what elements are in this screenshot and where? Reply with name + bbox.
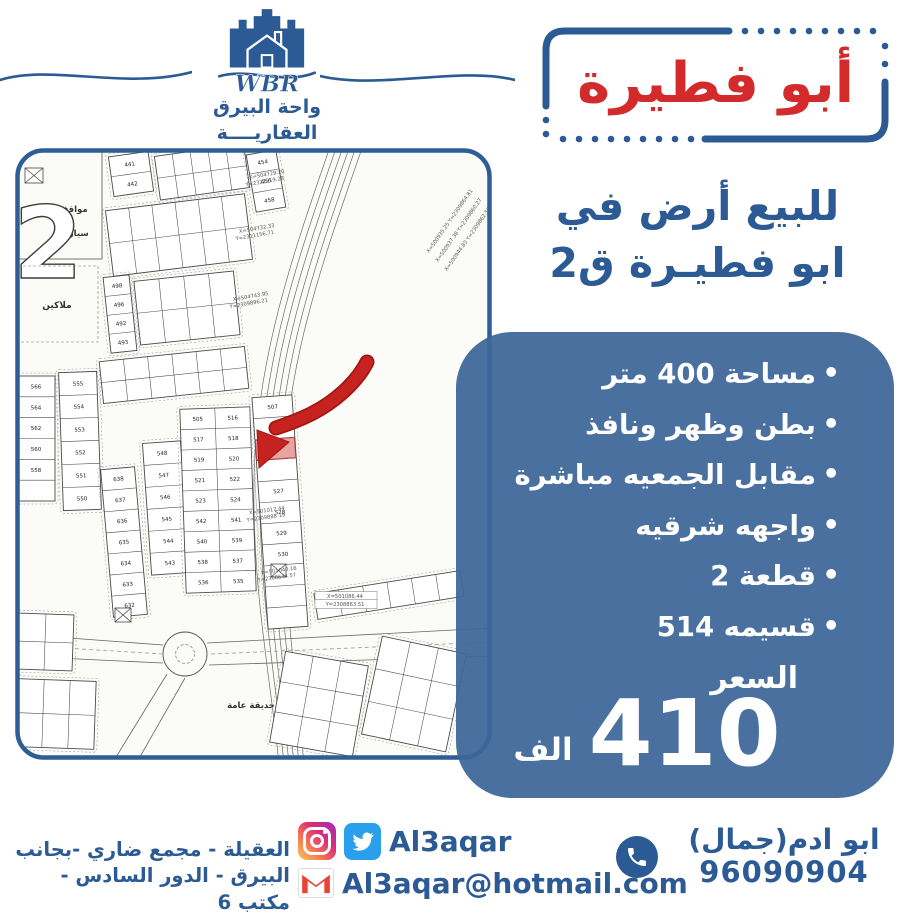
- page-title: أبو فطيرة: [533, 36, 898, 131]
- svg-text:547: 547: [158, 473, 169, 480]
- svg-text:558: 558: [31, 468, 42, 474]
- svg-text:518: 518: [228, 436, 239, 442]
- office-address: العقيلة - مجمع ضاري -بجانب البيرق - الدو…: [12, 837, 290, 916]
- svg-text:538: 538: [197, 560, 208, 566]
- phone-block: ابو ادم(جمال) 96090904: [616, 825, 898, 889]
- svg-text:564: 564: [31, 405, 42, 411]
- svg-text:2: 2: [15, 185, 83, 302]
- svg-text:530: 530: [278, 552, 289, 559]
- svg-text:540: 540: [197, 539, 208, 545]
- feature-item: قطعة 2: [484, 560, 842, 594]
- address-line2: البيرق - الدور السادس - مكتب 6: [12, 863, 290, 916]
- feature-item: مساحة 400 متر: [484, 358, 842, 392]
- price-row: 410 الف: [428, 690, 866, 777]
- svg-text:551: 551: [76, 473, 87, 479]
- contact-name: ابو ادم(جمال): [670, 825, 898, 856]
- svg-text:638: 638: [113, 476, 124, 483]
- right-wave-decoration: [320, 64, 515, 94]
- feature-list: مساحة 400 متربطن وظهر ونافذمقابل الجمعيه…: [456, 332, 894, 644]
- feature-item: بطن وظهر ونافذ: [484, 409, 842, 443]
- svg-text:539: 539: [232, 538, 243, 544]
- svg-text:636: 636: [117, 518, 128, 525]
- social-handle[interactable]: Al3aqar: [389, 825, 511, 858]
- sale-heading: للبيع أرض في ابو فطيـرة ق2: [505, 178, 890, 291]
- svg-text:541: 541: [231, 518, 242, 524]
- brand-logo: WBR واحة البيرق العقاريــــة: [192, 2, 342, 146]
- poster: WBR واحة البيرق العقاريــــة أبو فطيرة ل…: [0, 0, 900, 900]
- castle-icon: WBR: [213, 2, 321, 94]
- svg-text:552: 552: [75, 450, 86, 456]
- svg-text:542: 542: [196, 519, 207, 525]
- svg-text:548: 548: [157, 451, 168, 458]
- svg-text:529: 529: [276, 531, 287, 538]
- svg-text:حديقة عامة: حديقة عامة: [227, 701, 275, 711]
- price-unit: الف: [513, 732, 572, 768]
- social-row-email: Al3aqar@hotmail.com: [298, 863, 628, 903]
- svg-text:521: 521: [194, 478, 205, 484]
- phone-icon[interactable]: [616, 836, 658, 878]
- svg-text:Y=2308863.51: Y=2308863.51: [325, 602, 365, 608]
- svg-text:524: 524: [230, 497, 241, 503]
- svg-text:496: 496: [114, 302, 126, 309]
- svg-text:493: 493: [118, 340, 130, 347]
- plot-map: مواقفسيارات2ملاكينحديقة عامة441442498496…: [15, 148, 492, 760]
- area-title-box: أبو فطيرة: [533, 22, 898, 148]
- contact-footer: العقيلة - مجمع ضاري -بجانب البيرق - الدو…: [0, 815, 900, 900]
- feature-item: قسيمه 514: [484, 611, 842, 645]
- svg-text:553: 553: [74, 427, 85, 433]
- left-wave-decoration: [0, 62, 192, 92]
- sale-heading-line2: ابو فطيـرة ق2: [505, 235, 890, 292]
- svg-text:554: 554: [73, 404, 84, 410]
- feature-item: مقابل الجمعيه مباشرة: [484, 459, 842, 493]
- address-line1: العقيلة - مجمع ضاري -بجانب: [12, 837, 290, 863]
- social-block: Al3aqar Al3aqar@hotmail.com: [298, 821, 628, 903]
- feature-item: واجهه شرقيه: [484, 510, 842, 544]
- social-row-handles: Al3aqar: [298, 821, 628, 861]
- svg-text:522: 522: [229, 477, 240, 483]
- svg-text:544: 544: [163, 539, 174, 546]
- svg-text:550: 550: [77, 496, 88, 502]
- svg-text:566: 566: [31, 384, 42, 390]
- svg-text:637: 637: [115, 497, 126, 504]
- svg-text:505: 505: [192, 417, 203, 423]
- gmail-icon[interactable]: [298, 868, 334, 898]
- svg-text:527: 527: [273, 489, 284, 496]
- svg-text:543: 543: [164, 560, 175, 567]
- svg-text:498: 498: [112, 283, 124, 290]
- plot-map-svg: مواقفسيارات2ملاكينحديقة عامة441442498496…: [15, 148, 492, 760]
- svg-text:560: 560: [31, 447, 42, 453]
- svg-text:562: 562: [31, 426, 42, 432]
- svg-text:635: 635: [119, 540, 130, 547]
- instagram-icon[interactable]: [298, 822, 336, 860]
- svg-text:X=501086.44: X=501086.44: [327, 594, 364, 600]
- features-panel: مساحة 400 متربطن وظهر ونافذمقابل الجمعيه…: [456, 332, 894, 798]
- price-value: 410: [589, 690, 781, 777]
- svg-text:519: 519: [194, 458, 205, 464]
- brand-name-ar-2: العقاريــــة: [192, 122, 342, 146]
- svg-text:537: 537: [232, 558, 243, 564]
- svg-text:507: 507: [267, 404, 278, 411]
- svg-text:535: 535: [233, 579, 244, 585]
- svg-text:536: 536: [198, 580, 209, 586]
- twitter-icon[interactable]: [344, 823, 381, 860]
- svg-text:634: 634: [120, 561, 131, 568]
- phone-number[interactable]: 96090904: [670, 856, 898, 889]
- svg-text:492: 492: [116, 321, 127, 328]
- brand-name-ar-1: واحة البيرق: [192, 96, 342, 120]
- sale-heading-line1: للبيع أرض في: [505, 178, 890, 235]
- svg-text:520: 520: [229, 456, 240, 462]
- svg-text:546: 546: [160, 495, 171, 502]
- svg-text:523: 523: [195, 498, 206, 504]
- svg-text:545: 545: [161, 517, 172, 524]
- svg-text:ملاكين: ملاكين: [42, 301, 71, 311]
- svg-text:555: 555: [73, 381, 84, 387]
- svg-text:517: 517: [193, 437, 204, 443]
- svg-text:516: 516: [227, 415, 238, 421]
- brand-name-en: WBR: [235, 70, 299, 94]
- svg-text:633: 633: [122, 582, 133, 589]
